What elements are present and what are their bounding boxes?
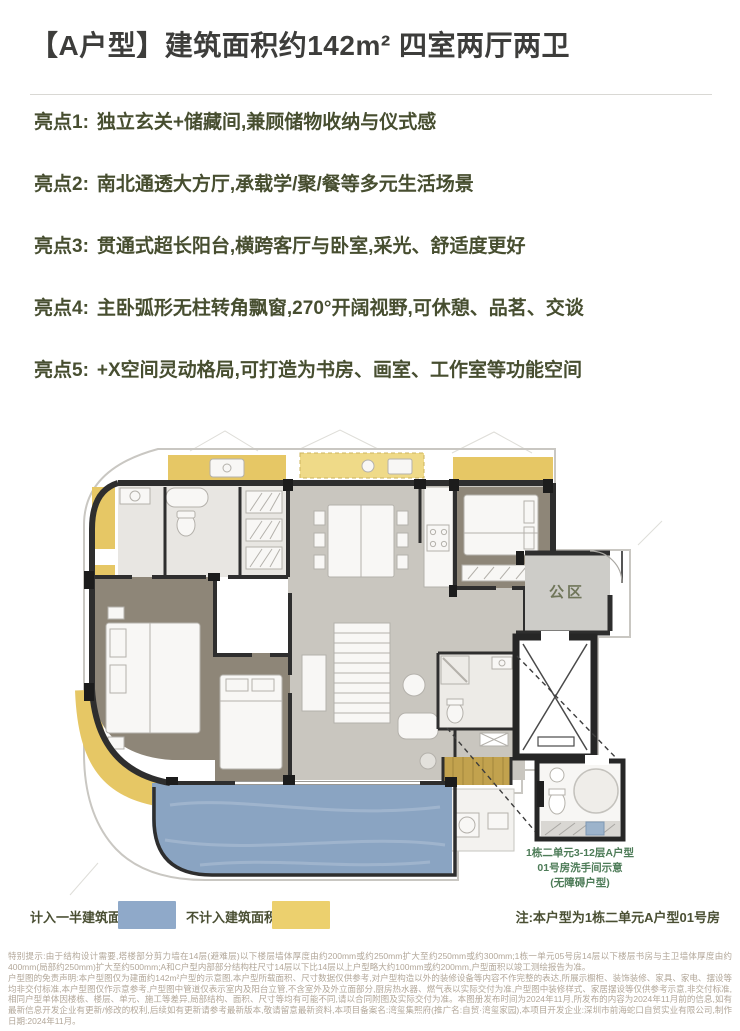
inset-caption-line3: (无障碍户型): [550, 876, 610, 889]
highlight-item-4: 亮点4:主卧弧形无柱转角飘窗,270°开阔视野,可休憩、品茗、交谈: [34, 296, 726, 322]
highlight-text: 主卧弧形无柱转角飘窗,270°开阔视野,可休憩、品茗、交谈: [97, 298, 584, 319]
highlight-text: 独立玄关+储藏间,兼顾储物收纳与仪式感: [97, 112, 436, 133]
highlight-item-1: 亮点1:独立玄关+储藏间,兼顾储物收纳与仪式感: [34, 110, 726, 136]
highlight-label: 亮点5:: [34, 360, 89, 381]
page-title: 【A户型】建筑面积约142m² 四室两厅两卫: [30, 24, 720, 64]
legend: 计入一半建筑面积 不计入建筑面积 注:本户型为1栋二单元A户型01号房: [0, 900, 740, 932]
highlight-item-3: 亮点3:贯通式超长阳台,横跨客厅与卧室,采光、舒适度更好: [34, 234, 726, 260]
highlight-label: 亮点3:: [34, 236, 89, 257]
disclaimer-legal: 户型图的免责声明:本户型图仅为建面约142m²户型的示意图,本户型所载面积、尺寸…: [8, 973, 732, 1026]
legend-swatch-half-area: [118, 901, 176, 929]
legend-swatch-excluded-area: [272, 901, 330, 929]
public-area-label: 公区: [549, 584, 585, 601]
floorplan: 公区 1栋二单元3-12层A户型 01号房洗手间示意 (无障碍户型): [0, 425, 740, 905]
highlight-label: 亮点1:: [34, 112, 89, 133]
bathroom-inset: 1栋二单元3-12层A户型 01号房洗手间示意 (无障碍户型): [526, 755, 634, 889]
highlight-item-2: 亮点2:南北通透大方厅,承载学/聚/餐等多元生活场景: [34, 172, 726, 198]
inset-caption-line1: 1栋二单元3-12层A户型: [526, 846, 634, 859]
highlight-label: 亮点2:: [34, 174, 89, 195]
title-divider: [30, 94, 712, 95]
public-area: 公区: [516, 551, 622, 633]
highlight-item-5: 亮点5:+X空间灵动格局,可打造为书房、画室、工作室等功能空间: [34, 358, 726, 384]
highlight-label: 亮点4:: [34, 298, 89, 319]
balcony-shape: [152, 783, 452, 875]
highlight-text: 南北通透大方厅,承载学/聚/餐等多元生活场景: [97, 174, 474, 195]
highlight-text: 贯通式超长阳台,横跨客厅与卧室,采光、舒适度更好: [97, 236, 526, 257]
floorplan-svg: 公区 1栋二单元3-12层A户型 01号房洗手间示意 (无障碍户型): [0, 425, 740, 905]
inset-caption-line2: 01号房洗手间示意: [537, 861, 623, 874]
legend-label-excluded-area: 不计入建筑面积: [186, 907, 277, 926]
balcony-glass-door: [235, 782, 420, 785]
disclaimer-special-note: 特别提示:由于结构设计需要,塔楼部分剪力墙在14层(避难层)以下楼层墙体厚度由约…: [8, 951, 732, 972]
unit-note: 注:本户型为1栋二单元A户型01号房: [516, 907, 720, 926]
disclaimer: 特别提示:由于结构设计需要,塔楼部分剪力墙在14层(避难层)以下楼层墙体厚度由约…: [8, 951, 732, 1027]
highlight-list: 亮点1:独立玄关+储藏间,兼顾储物收纳与仪式感 亮点2:南北通透大方厅,承载学/…: [34, 110, 726, 420]
elevator: [516, 631, 594, 757]
highlight-text: +X空间灵动格局,可打造为书房、画室、工作室等功能空间: [97, 360, 582, 381]
